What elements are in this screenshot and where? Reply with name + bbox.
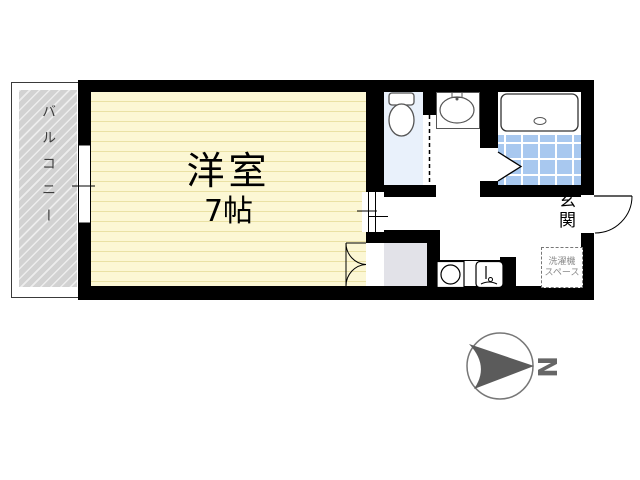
bathtub-icon <box>501 94 578 131</box>
closet-double-door-icon <box>346 243 366 286</box>
fixtures-overlay: N <box>0 0 640 480</box>
compass-north-icon: N <box>467 333 561 399</box>
washbasin-icon <box>437 93 480 129</box>
kitchen-sink-icon <box>476 262 503 288</box>
bathroom-door-icon <box>498 152 521 181</box>
room-sliding-door-icon <box>357 192 388 232</box>
compass-north-label: N <box>531 356 561 378</box>
floorplan-canvas: バルコニー 洋室 7帖 玄関 洗濯機 スペース <box>0 0 640 480</box>
stove-burner-icon <box>437 262 464 288</box>
toilet-icon <box>389 93 414 136</box>
sliding-window-icon <box>72 145 95 223</box>
entrance-door-icon <box>581 195 632 234</box>
